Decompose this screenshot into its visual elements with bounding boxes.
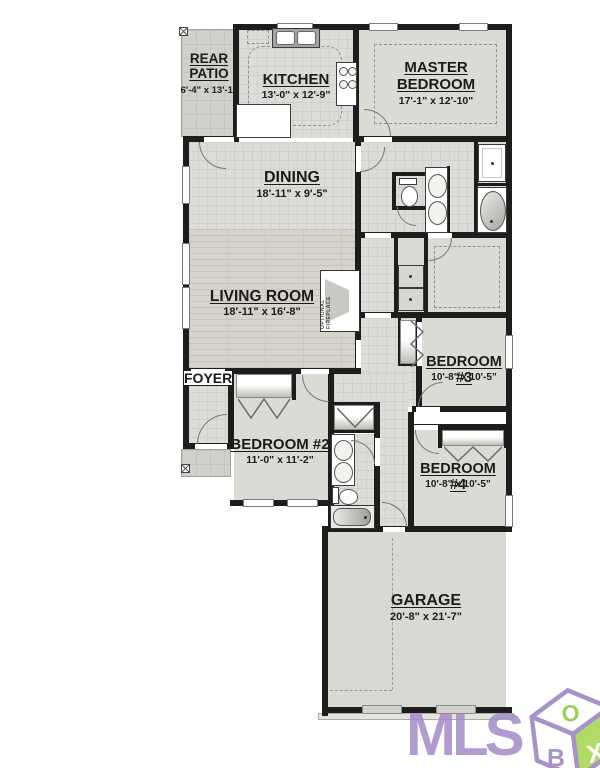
room-dims-dining: 18'-11" x 9'-5" bbox=[246, 188, 338, 200]
window bbox=[459, 23, 488, 31]
wall bbox=[424, 238, 428, 312]
vanity-sink bbox=[428, 174, 447, 198]
window bbox=[182, 287, 190, 329]
wall bbox=[330, 430, 376, 433]
washer-knob bbox=[409, 275, 412, 278]
toilet bbox=[339, 489, 358, 505]
wall bbox=[392, 172, 396, 210]
shower-drain bbox=[491, 162, 494, 165]
bedroom4-closet bbox=[442, 430, 504, 446]
wall bbox=[476, 183, 508, 186]
garage-bay-outline bbox=[330, 690, 392, 691]
cased-opening bbox=[356, 340, 361, 368]
door-opening bbox=[301, 369, 329, 374]
room-name: KITCHEN bbox=[263, 71, 330, 88]
room-label-dining: DINING bbox=[248, 169, 336, 187]
room-name: LIVING ROOM bbox=[210, 288, 314, 305]
garage-door bbox=[362, 705, 402, 714]
room-label-kitchen: KITCHEN bbox=[250, 72, 342, 89]
toilet-tank bbox=[399, 178, 417, 185]
bifold-doors bbox=[337, 407, 373, 429]
room-dims-kitchen: 13'-0" x 12'-9" bbox=[248, 90, 344, 102]
outlet-symbol bbox=[181, 464, 190, 473]
hall-opening bbox=[365, 233, 391, 238]
wall bbox=[392, 172, 426, 176]
room-dims-rear-patio: 6'-4" x 13'-1" bbox=[173, 86, 245, 96]
room-name: GARAGE bbox=[391, 592, 461, 609]
kitchen-sink bbox=[297, 31, 316, 45]
kitchen-sink bbox=[276, 31, 295, 45]
hall-floor bbox=[359, 238, 394, 313]
room-name: DINING bbox=[264, 169, 320, 186]
vanity-sink bbox=[428, 201, 447, 225]
cube-letter-o: O bbox=[560, 699, 581, 727]
window bbox=[369, 23, 398, 31]
bifold-doors bbox=[238, 398, 290, 420]
window bbox=[505, 495, 513, 527]
room-label-living: LIVING ROOM bbox=[206, 288, 318, 305]
vanity-sink bbox=[334, 462, 353, 483]
kitchen-island bbox=[236, 104, 291, 138]
wall bbox=[292, 374, 296, 400]
bedroom2-closet bbox=[236, 374, 292, 398]
room-dims-bedroom-4: 10'-8" x 10'-5" bbox=[416, 479, 500, 490]
window bbox=[182, 243, 190, 285]
window bbox=[287, 499, 318, 507]
window bbox=[182, 166, 190, 204]
hall-floor bbox=[334, 374, 376, 402]
room-name: FOYER bbox=[184, 370, 232, 386]
door-opening bbox=[383, 527, 405, 532]
wall bbox=[504, 430, 508, 448]
dishwasher-outline bbox=[247, 30, 269, 44]
room-name: REAR PATIO bbox=[189, 51, 228, 81]
room-dims-bedroom-2: 11'-0" x 11'-2" bbox=[232, 455, 328, 467]
burner bbox=[348, 67, 357, 76]
room-label-master-bedroom: MASTER BEDROOM bbox=[388, 60, 484, 93]
room-dims-master-bedroom: 17'-1" x 12'-10" bbox=[386, 96, 486, 108]
toilet-tank bbox=[332, 487, 339, 504]
room-label-bedroom-2: BEDROOM #2 bbox=[228, 437, 332, 454]
hall-opening bbox=[365, 313, 391, 318]
cube-letter-b: B bbox=[547, 744, 566, 768]
outlet-symbol bbox=[179, 27, 188, 36]
door-opening bbox=[364, 137, 392, 142]
bifold-doors bbox=[444, 446, 502, 462]
burner bbox=[348, 80, 357, 89]
toilet bbox=[401, 186, 418, 207]
room-dims-garage: 20'-8" x 21'-7" bbox=[380, 611, 472, 623]
mls-cube-icon: O B X bbox=[523, 681, 600, 768]
room-dims-bedroom-3: 10'-8" x 10'-5" bbox=[422, 372, 506, 383]
floor-plan: OPTIONAL FIREPLACE REAR PATIO 6'-4" x 13… bbox=[0, 0, 600, 768]
room-floor-rear-patio bbox=[181, 29, 235, 137]
room-label-foyer: FOYER bbox=[184, 371, 232, 386]
mlsbox-watermark: MLS O B X bbox=[406, 690, 600, 768]
fireplace-note: OPTIONAL FIREPLACE bbox=[320, 273, 332, 329]
dryer-knob bbox=[409, 298, 412, 301]
mls-logo-text: MLS bbox=[406, 700, 521, 768]
door-opening bbox=[375, 438, 380, 466]
room-label-rear-patio: REAR PATIO bbox=[179, 52, 239, 82]
window bbox=[243, 499, 274, 507]
room-name: MASTER BEDROOM bbox=[397, 59, 475, 93]
door-opening bbox=[416, 407, 440, 412]
room-dims-living: 18'-11" x 16'-8" bbox=[204, 306, 320, 318]
room-label-garage: GARAGE bbox=[384, 592, 468, 610]
wall bbox=[506, 24, 512, 532]
room-name: BEDROOM #2 bbox=[230, 436, 329, 453]
tub-basin bbox=[480, 191, 506, 231]
tub-drain bbox=[364, 516, 367, 519]
tub-drain bbox=[490, 220, 493, 223]
wall bbox=[322, 526, 328, 716]
front-door-opening bbox=[195, 444, 227, 449]
